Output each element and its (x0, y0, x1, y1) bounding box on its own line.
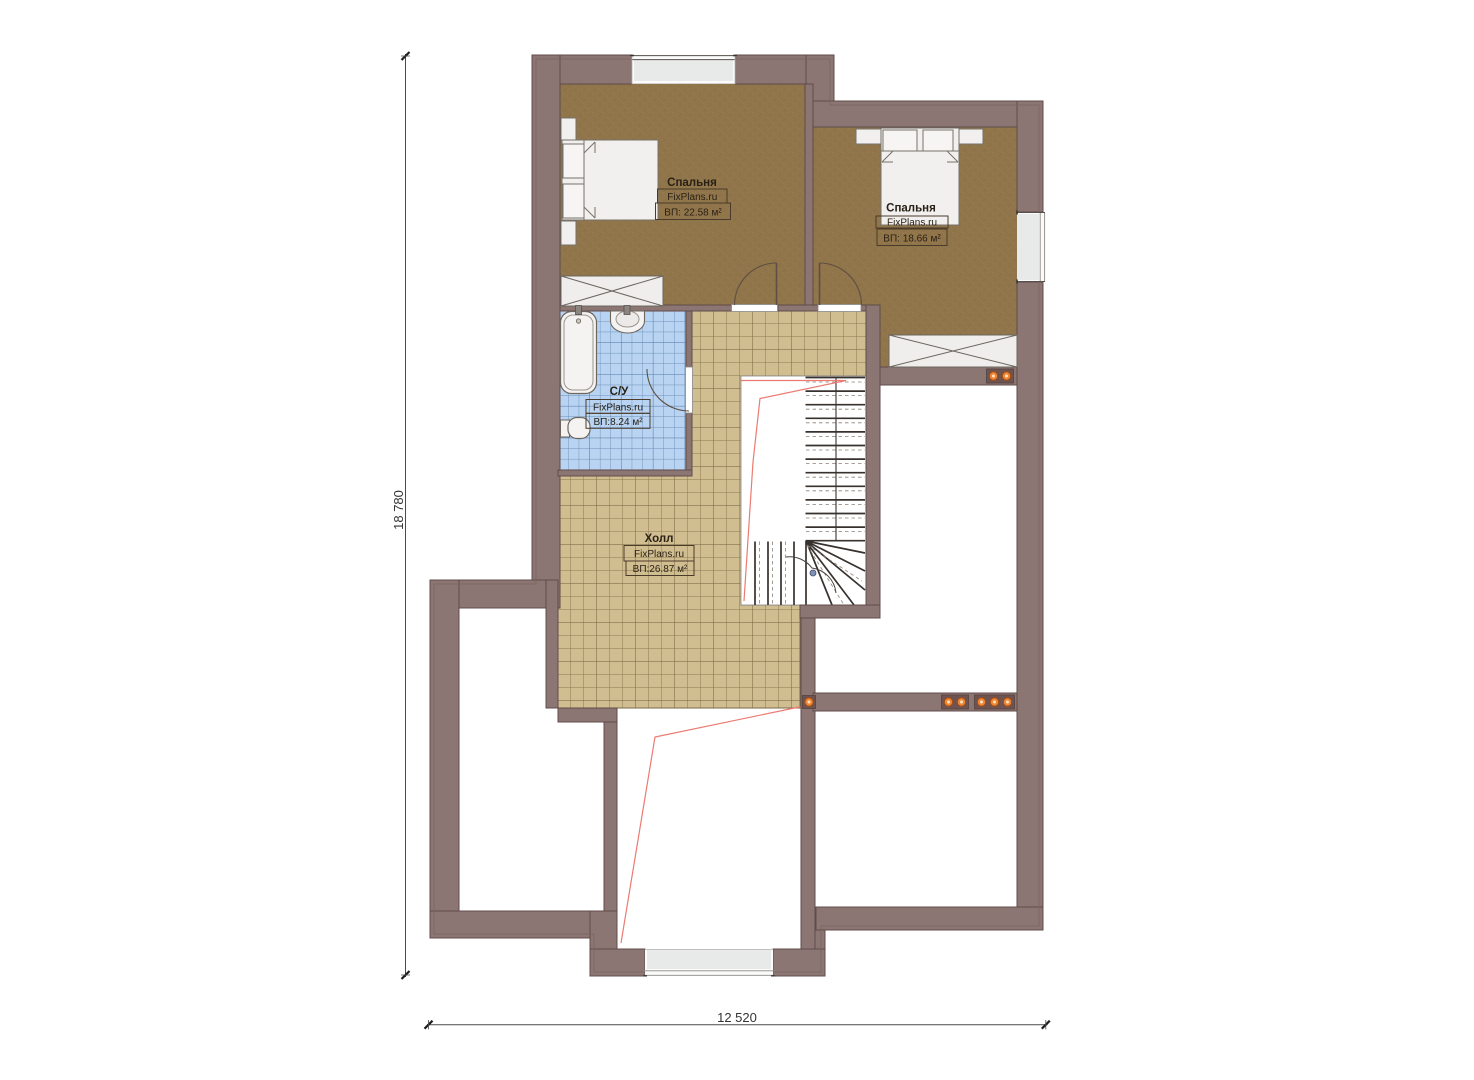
svg-text:ВП:8.24 м²: ВП:8.24 м² (593, 417, 643, 428)
svg-text:ВП: 18.66 м²: ВП: 18.66 м² (883, 234, 941, 245)
svg-text:Спальня: Спальня (667, 177, 717, 189)
svg-text:Спальня: Спальня (886, 203, 936, 215)
svg-text:FixPlans.ru: FixPlans.ru (593, 403, 643, 414)
svg-text:ВП:26.87 м²: ВП:26.87 м² (633, 564, 688, 575)
svg-text:ВП: 22.58 м²: ВП: 22.58 м² (664, 208, 722, 219)
svg-text:18 780: 18 780 (391, 490, 406, 530)
svg-text:Холл: Холл (645, 533, 674, 545)
svg-text:FixPlans.ru: FixPlans.ru (634, 549, 684, 560)
svg-text:FixPlans.ru: FixPlans.ru (667, 192, 717, 203)
svg-text:FixPlans.ru: FixPlans.ru (887, 218, 937, 229)
svg-text:12 520: 12 520 (717, 1010, 757, 1025)
svg-text:С/У: С/У (610, 386, 630, 398)
